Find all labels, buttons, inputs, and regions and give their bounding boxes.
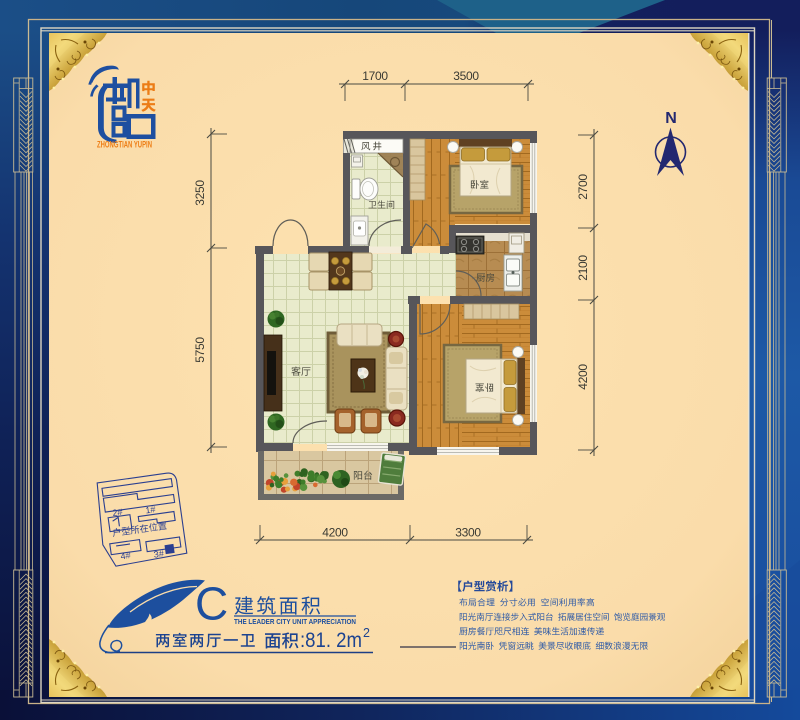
svg-text:1700: 1700 (362, 69, 388, 83)
svg-text:C: C (195, 578, 228, 630)
svg-text:1#: 1# (145, 504, 156, 515)
svg-text::81. 2m: :81. 2m (300, 628, 362, 652)
svg-text:THE LEADER CITY UNIT APPRECIAT: THE LEADER CITY UNIT APPRECIATION (234, 617, 356, 626)
svg-text:3250: 3250 (193, 180, 207, 206)
svg-text:3500: 3500 (453, 69, 479, 83)
svg-text:2#: 2# (112, 507, 123, 518)
svg-text:4200: 4200 (576, 364, 590, 390)
svg-text:3#: 3# (153, 548, 164, 559)
svg-text:3300: 3300 (455, 526, 481, 540)
svg-text:N: N (665, 110, 677, 127)
svg-text:ZHONGTIAN YUPIN: ZHONGTIAN YUPIN (97, 140, 152, 150)
svg-text:2700: 2700 (576, 174, 590, 200)
svg-text:4#: 4# (120, 550, 131, 561)
svg-text:2: 2 (363, 626, 370, 640)
svg-text:5750: 5750 (193, 337, 207, 363)
svg-text:2100: 2100 (576, 255, 590, 281)
svg-text:4200: 4200 (322, 526, 348, 540)
